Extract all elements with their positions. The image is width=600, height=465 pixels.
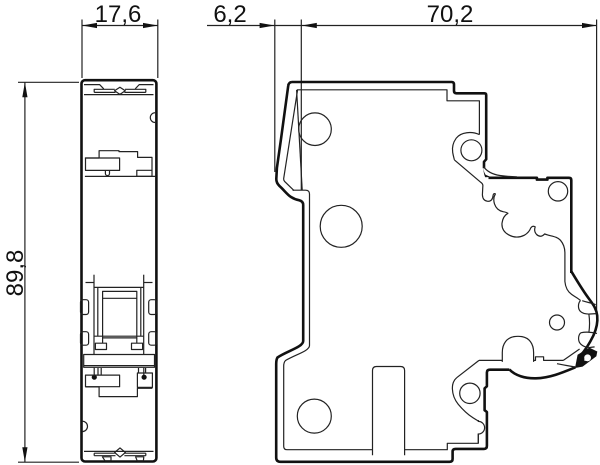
svg-text:6,2: 6,2 [213, 1, 246, 28]
svg-text:70,2: 70,2 [427, 1, 474, 28]
svg-text:17,6: 17,6 [95, 1, 142, 28]
